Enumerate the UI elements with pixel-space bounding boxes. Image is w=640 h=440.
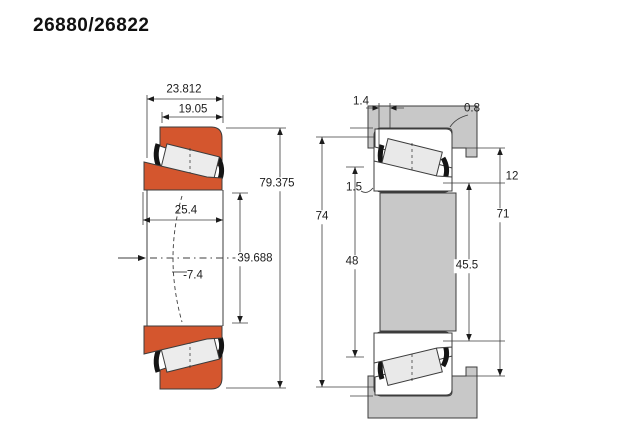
catalog-page: 26880/26822 23.812 19.05 79.375 25.4 39.…: [0, 0, 640, 440]
bearing-half-section-mirrored: [144, 326, 222, 389]
dim-label-cone-width: 25.4: [175, 205, 197, 217]
centerline: [118, 255, 238, 261]
dim-label-abutment-diameter: 45.5: [454, 259, 480, 273]
dim-label-bore-diameter: 39.688: [235, 252, 274, 266]
dim-label-shaft-shoulder: 48: [344, 255, 361, 269]
shaft-section: [380, 193, 456, 331]
leader-shaft-fillet: [361, 188, 373, 192]
part-number-title: 26880/26822: [33, 15, 149, 37]
left-view-cross-section: [118, 95, 286, 389]
dim-label-shoulder-offset: 12: [506, 171, 519, 183]
dim-label-cup-width: 19.05: [179, 104, 208, 116]
dim-label-housing-fillet: 0.8: [464, 103, 480, 115]
dim-label-gap-width: 1.4: [353, 96, 369, 108]
dim-label-load-center: -7.4: [183, 270, 203, 282]
cage-left: [156, 144, 159, 167]
housing-and-bearing-half-mirrored: [368, 332, 477, 418]
dim-label-housing-shoulder: 71: [495, 208, 512, 222]
dim-label-housing-bore: 74: [314, 210, 331, 224]
housing-and-bearing-half: [368, 106, 477, 192]
dim-label-outer-diameter: 79.375: [257, 177, 296, 191]
dim-label-shaft-fillet: 1.5: [346, 182, 362, 194]
bearing-half-section: [144, 127, 222, 190]
dim-label-overall-width: 23.812: [166, 84, 201, 96]
